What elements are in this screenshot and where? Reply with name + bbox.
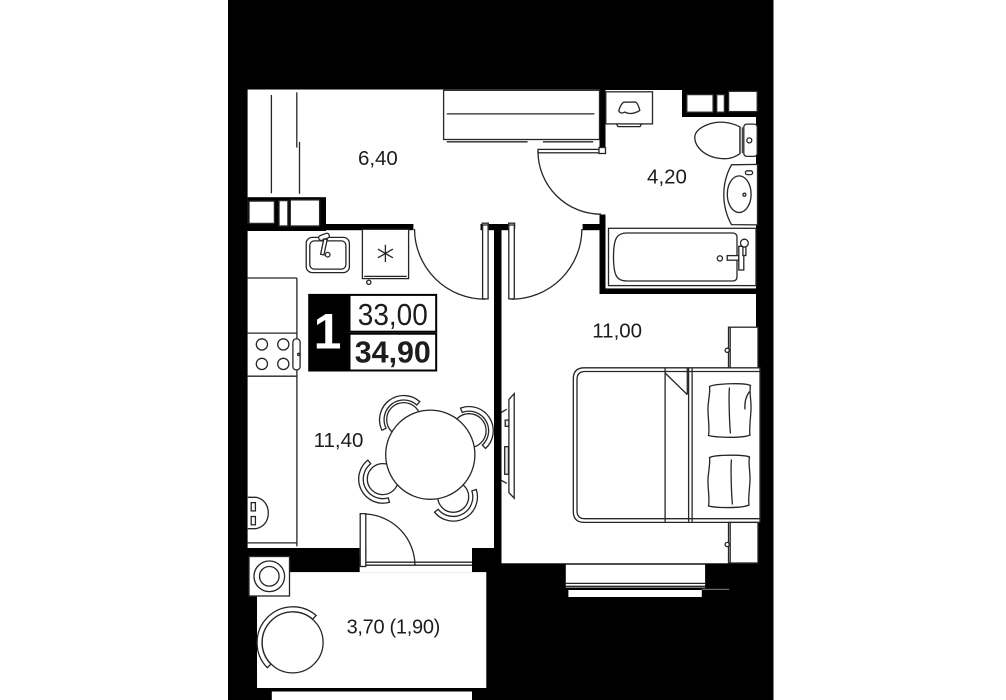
svg-text:11,40: 11,40 [314, 429, 364, 452]
svg-text:11,00: 11,00 [592, 319, 642, 342]
svg-text:6,40: 6,40 [358, 147, 398, 170]
svg-text:3,70 (1,90): 3,70 (1,90) [347, 617, 440, 639]
svg-text:4,20: 4,20 [647, 166, 687, 189]
svg-text:1: 1 [314, 303, 342, 359]
svg-text:34,90: 34,90 [355, 334, 431, 369]
svg-text:33,00: 33,00 [358, 297, 428, 332]
